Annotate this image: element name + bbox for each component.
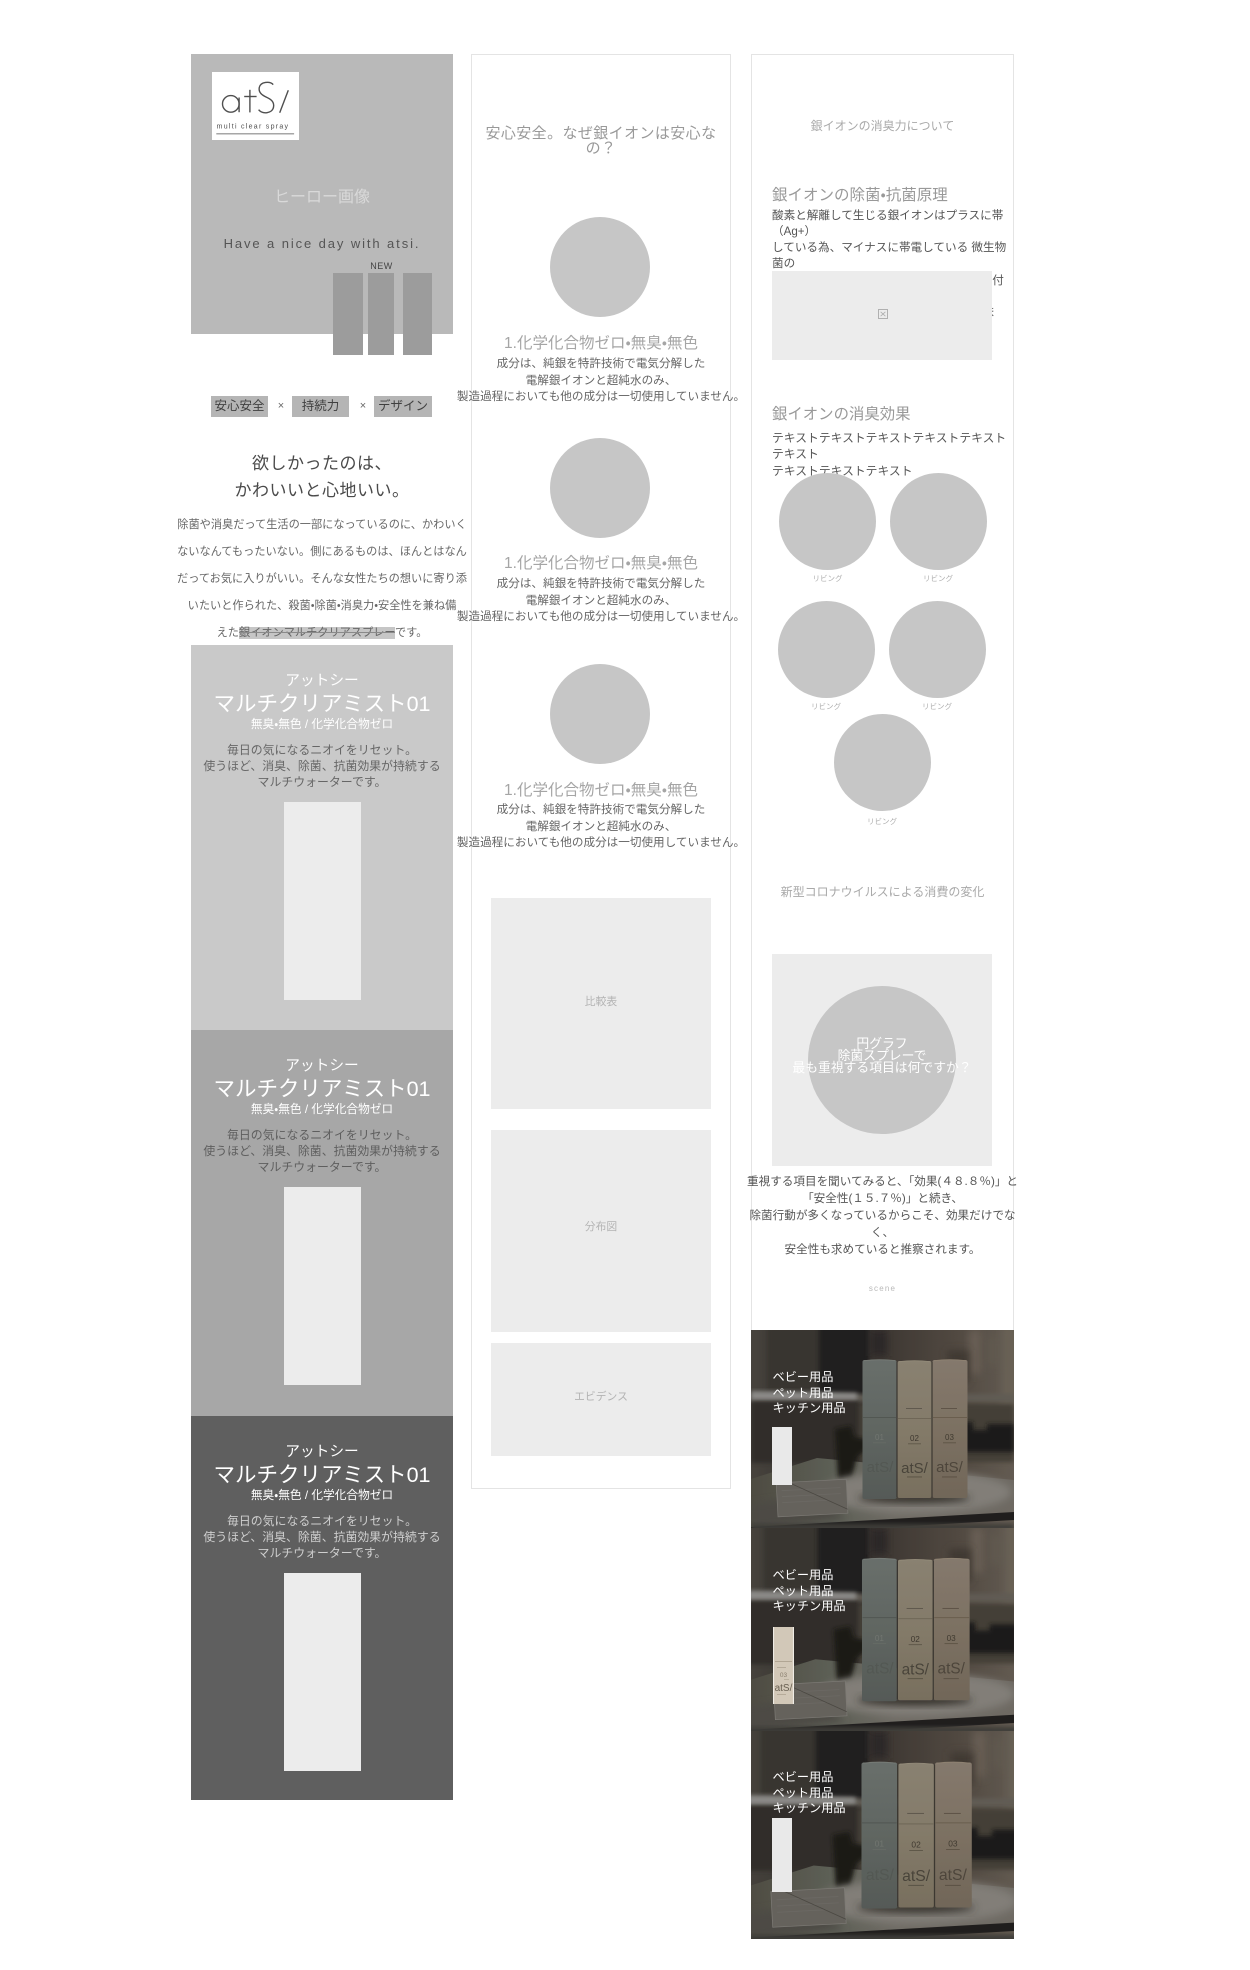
svg-text:atS/: atS/ [774, 1683, 792, 1694]
svg-text:03: 03 [779, 1672, 787, 1679]
svg-text:multi clear spray: multi clear spray [217, 123, 290, 130]
